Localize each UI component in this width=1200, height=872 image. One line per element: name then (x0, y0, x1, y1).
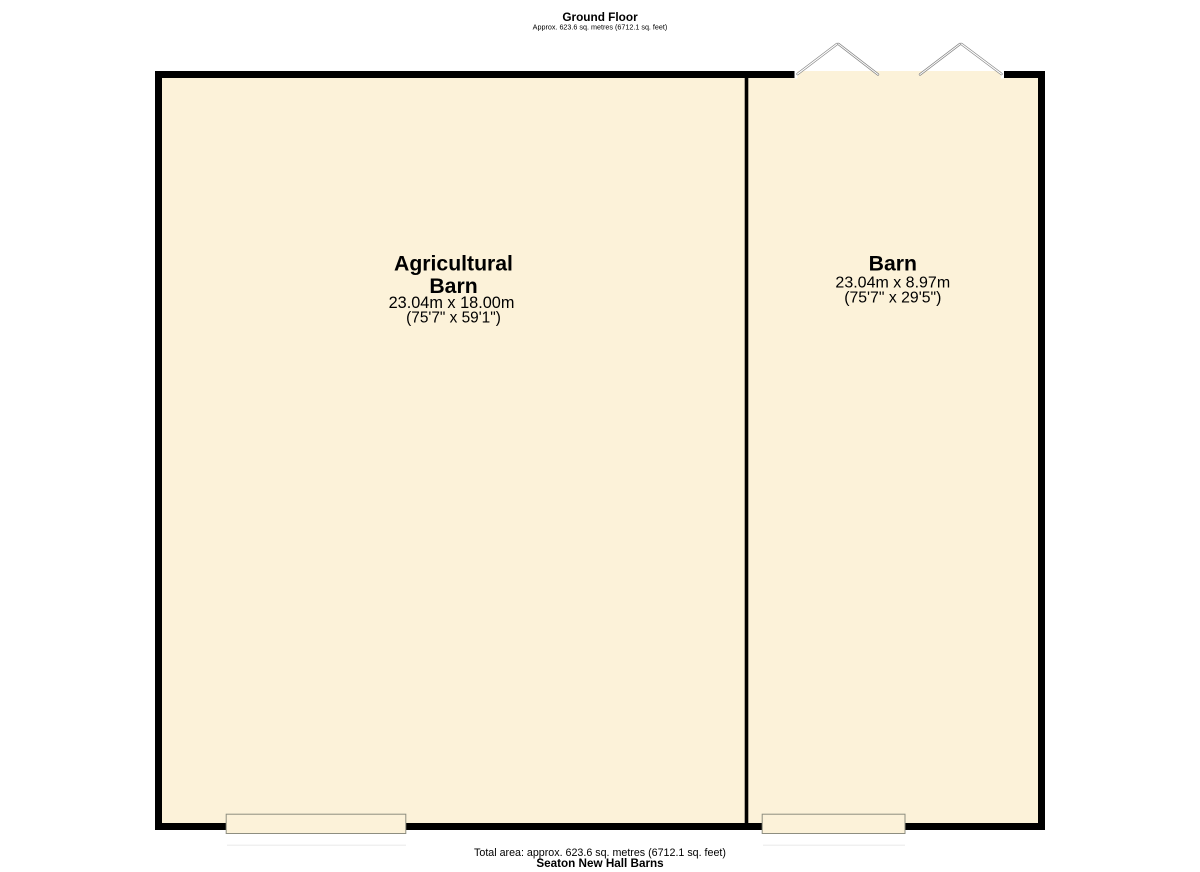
svg-text:Barn: Barn (869, 253, 917, 276)
svg-text:Approx. 623.6 sq. metres (6712: Approx. 623.6 sq. metres (6712.1 sq. fee… (533, 23, 668, 32)
svg-text:Agricultural: Agricultural (394, 253, 513, 276)
svg-text:(75'7" x 59'1"): (75'7" x 59'1") (406, 310, 501, 327)
svg-text:(75'7" x 29'5"): (75'7" x 29'5") (844, 289, 941, 306)
svg-text:Seaton New Hall Barns: Seaton New Hall Barns (536, 857, 664, 870)
